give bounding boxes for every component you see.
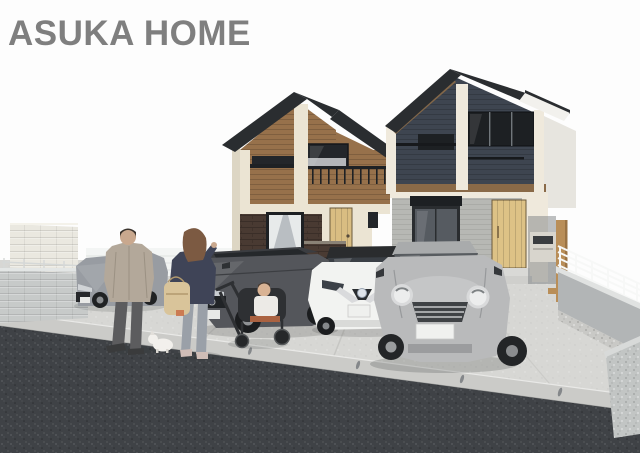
woman-hair	[183, 228, 207, 262]
toddler-body	[254, 296, 278, 316]
license-plate	[348, 305, 370, 317]
sandal	[196, 352, 208, 359]
left-house-side-face	[232, 148, 240, 264]
sandal	[180, 349, 192, 357]
bag-accent	[176, 310, 184, 316]
rendering-scene	[0, 0, 640, 453]
brand-badge	[358, 289, 367, 298]
utility-box	[368, 212, 378, 228]
right-house-door	[492, 200, 526, 268]
license-plate	[416, 324, 454, 339]
shoe	[128, 348, 144, 355]
property-rendering: ASUKA HOME	[0, 0, 640, 453]
mailbox-plate	[533, 236, 553, 244]
right-house-gable-end	[544, 116, 576, 208]
asuka-home-logo: ASUKA HOME	[8, 14, 251, 54]
